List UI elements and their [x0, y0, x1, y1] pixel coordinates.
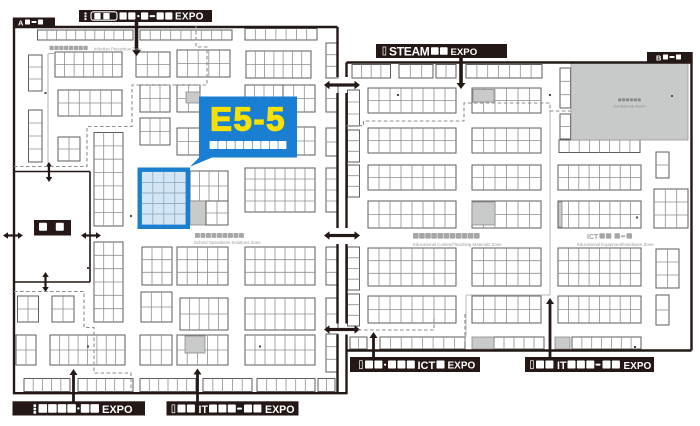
svg-text:Educational Equipment/Hardware: Educational Equipment/Hardware Zone	[577, 242, 654, 247]
svg-text:A: A	[18, 18, 24, 27]
svg-text:STEAM: STEAM	[389, 45, 430, 59]
svg-text:School Operations Solutions Zo: School Operations Solutions Zone	[194, 240, 261, 245]
svg-text:Conference Room: Conference Room	[613, 104, 646, 109]
svg-text:Infection Prevention Zone: Infection Prevention Zone	[94, 47, 142, 52]
svg-text:EXPO: EXPO	[265, 404, 294, 416]
svg-text:IT: IT	[199, 404, 209, 416]
svg-text:E5-5: E5-5	[210, 101, 286, 138]
svg-text:EXPO: EXPO	[175, 12, 204, 23]
svg-text:EXPO: EXPO	[624, 361, 652, 372]
svg-text:ICT: ICT	[587, 234, 599, 241]
svg-text:EXPO: EXPO	[102, 404, 133, 416]
svg-text:Educational Content/Teaching M: Educational Content/Teaching Materials Z…	[413, 242, 502, 247]
svg-text:IT: IT	[557, 360, 567, 372]
svg-text:EXPO: EXPO	[448, 361, 476, 372]
svg-text:ICT: ICT	[418, 360, 436, 372]
svg-text:EXPO: EXPO	[451, 47, 478, 58]
svg-text:B: B	[656, 53, 662, 62]
